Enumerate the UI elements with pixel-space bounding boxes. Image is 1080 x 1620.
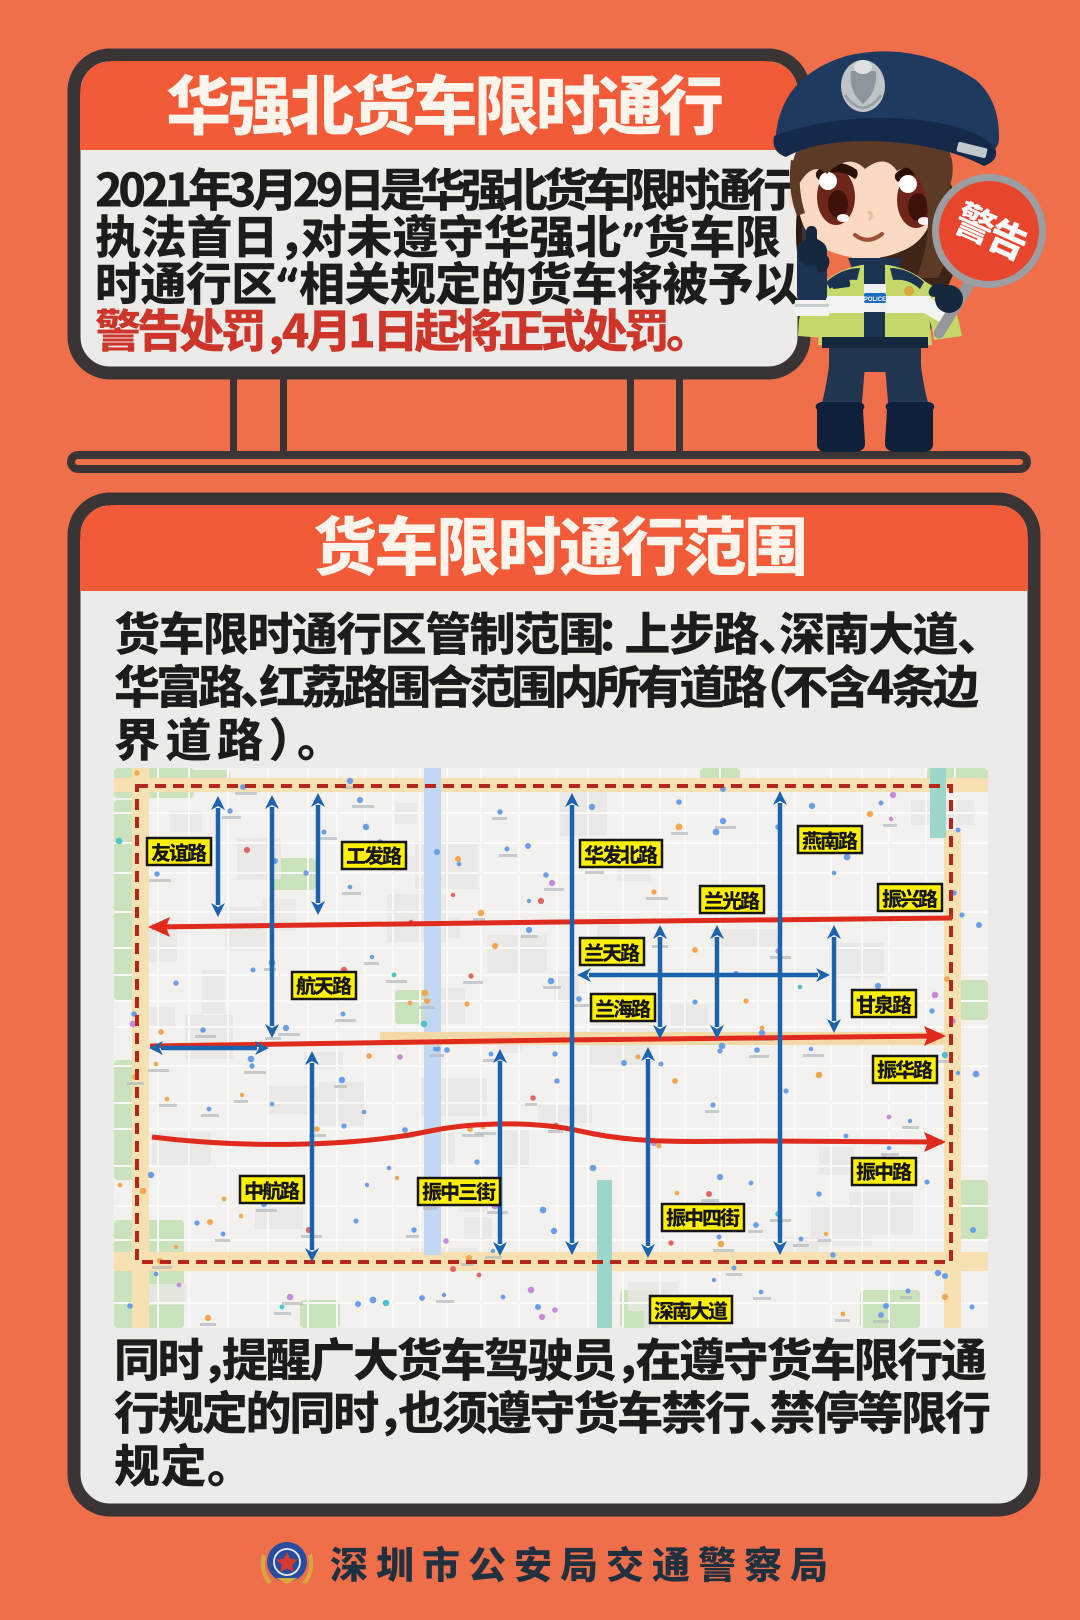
svg-text:POLICE: POLICE (864, 297, 886, 303)
